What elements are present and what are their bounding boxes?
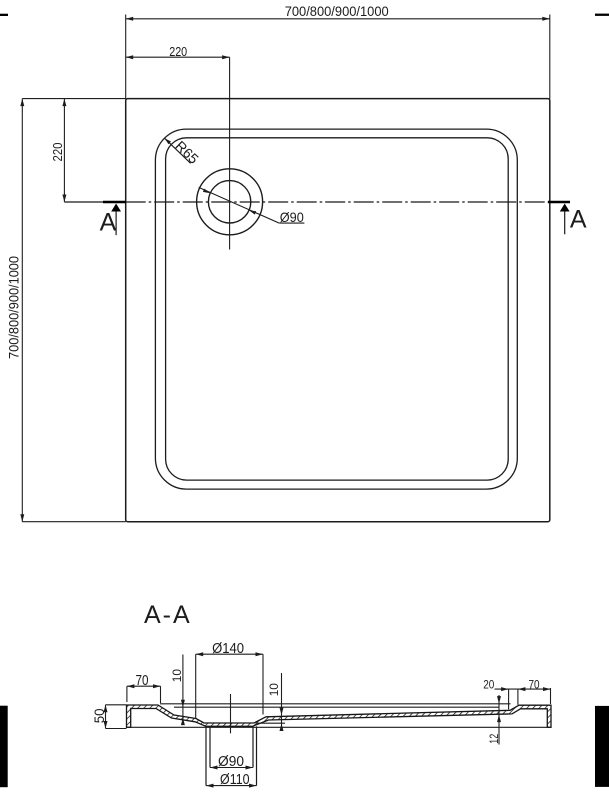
- svg-text:A-A: A-A: [144, 601, 192, 629]
- svg-text:220: 220: [51, 142, 65, 161]
- svg-text:12: 12: [487, 733, 501, 743]
- svg-text:Ø110: Ø110: [220, 771, 250, 788]
- svg-text:700/800/900/1000: 700/800/900/1000: [5, 256, 21, 359]
- svg-text:A: A: [100, 209, 117, 237]
- svg-text:10: 10: [267, 683, 281, 697]
- svg-text:Ø90: Ø90: [280, 209, 304, 225]
- svg-text:220: 220: [169, 45, 187, 59]
- svg-text:A: A: [570, 206, 587, 234]
- svg-text:700/800/900/1000: 700/800/900/1000: [285, 3, 389, 19]
- svg-text:20: 20: [483, 679, 494, 691]
- svg-text:Ø90: Ø90: [218, 754, 244, 770]
- svg-text:70: 70: [136, 672, 149, 689]
- svg-text:50: 50: [91, 708, 107, 723]
- svg-text:70: 70: [528, 679, 539, 691]
- svg-text:Ø140: Ø140: [212, 641, 244, 657]
- svg-text:10: 10: [170, 669, 184, 683]
